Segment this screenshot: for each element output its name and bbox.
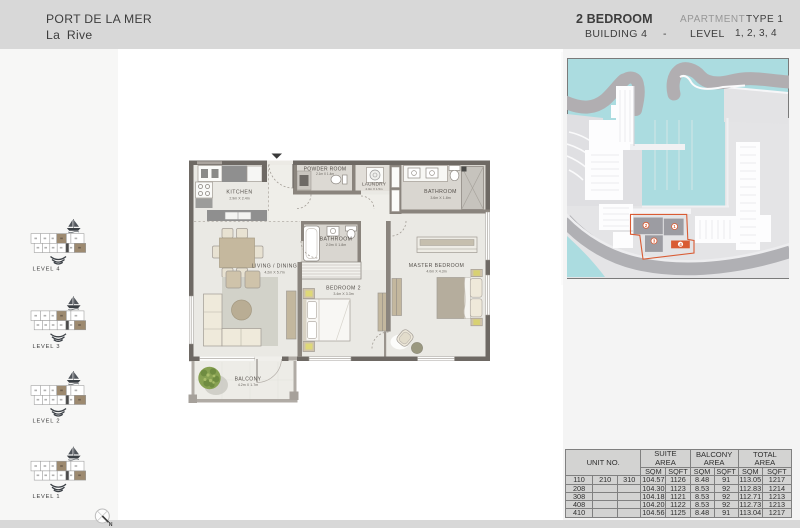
svg-text:BATHROOM: BATHROOM (424, 189, 457, 195)
svg-text:LEVEL 4: LEVEL 4 (33, 267, 61, 273)
svg-text:LEVEL 3: LEVEL 3 (33, 344, 61, 350)
svg-text:2.0m X 1.8m: 2.0m X 1.8m (326, 243, 346, 247)
svg-text:3.4m X 3.3m: 3.4m X 3.3m (333, 292, 353, 296)
svg-text:2.1m X 1.4m: 2.1m X 1.4m (316, 172, 334, 176)
svg-text:3.6m X 1.8m: 3.6m X 1.8m (430, 196, 450, 200)
svg-text:4.2m X 5.7m: 4.2m X 5.7m (264, 271, 284, 275)
svg-text:LEVEL 2: LEVEL 2 (33, 419, 61, 425)
svg-text:BEDROOM 2: BEDROOM 2 (326, 286, 361, 292)
svg-text:LIVING / DINING: LIVING / DINING (252, 264, 298, 270)
svg-text:MASTER BEDROOM: MASTER BEDROOM (409, 263, 464, 269)
svg-text:KITCHEN: KITCHEN (226, 190, 252, 196)
svg-text:2.9m X 2.4m: 2.9m X 2.4m (229, 197, 249, 201)
svg-text:2.0m X 1.5m: 2.0m X 1.5m (365, 187, 383, 191)
svg-text:BALCONY: BALCONY (235, 377, 262, 383)
svg-text:N: N (109, 522, 113, 528)
svg-text:4.0m X 4.3m: 4.0m X 4.3m (426, 270, 446, 274)
svg-text:4.2m X 1.7m: 4.2m X 1.7m (238, 383, 258, 387)
svg-text:LEVEL 1: LEVEL 1 (33, 494, 61, 500)
svg-text:BATHROOM: BATHROOM (320, 237, 353, 243)
